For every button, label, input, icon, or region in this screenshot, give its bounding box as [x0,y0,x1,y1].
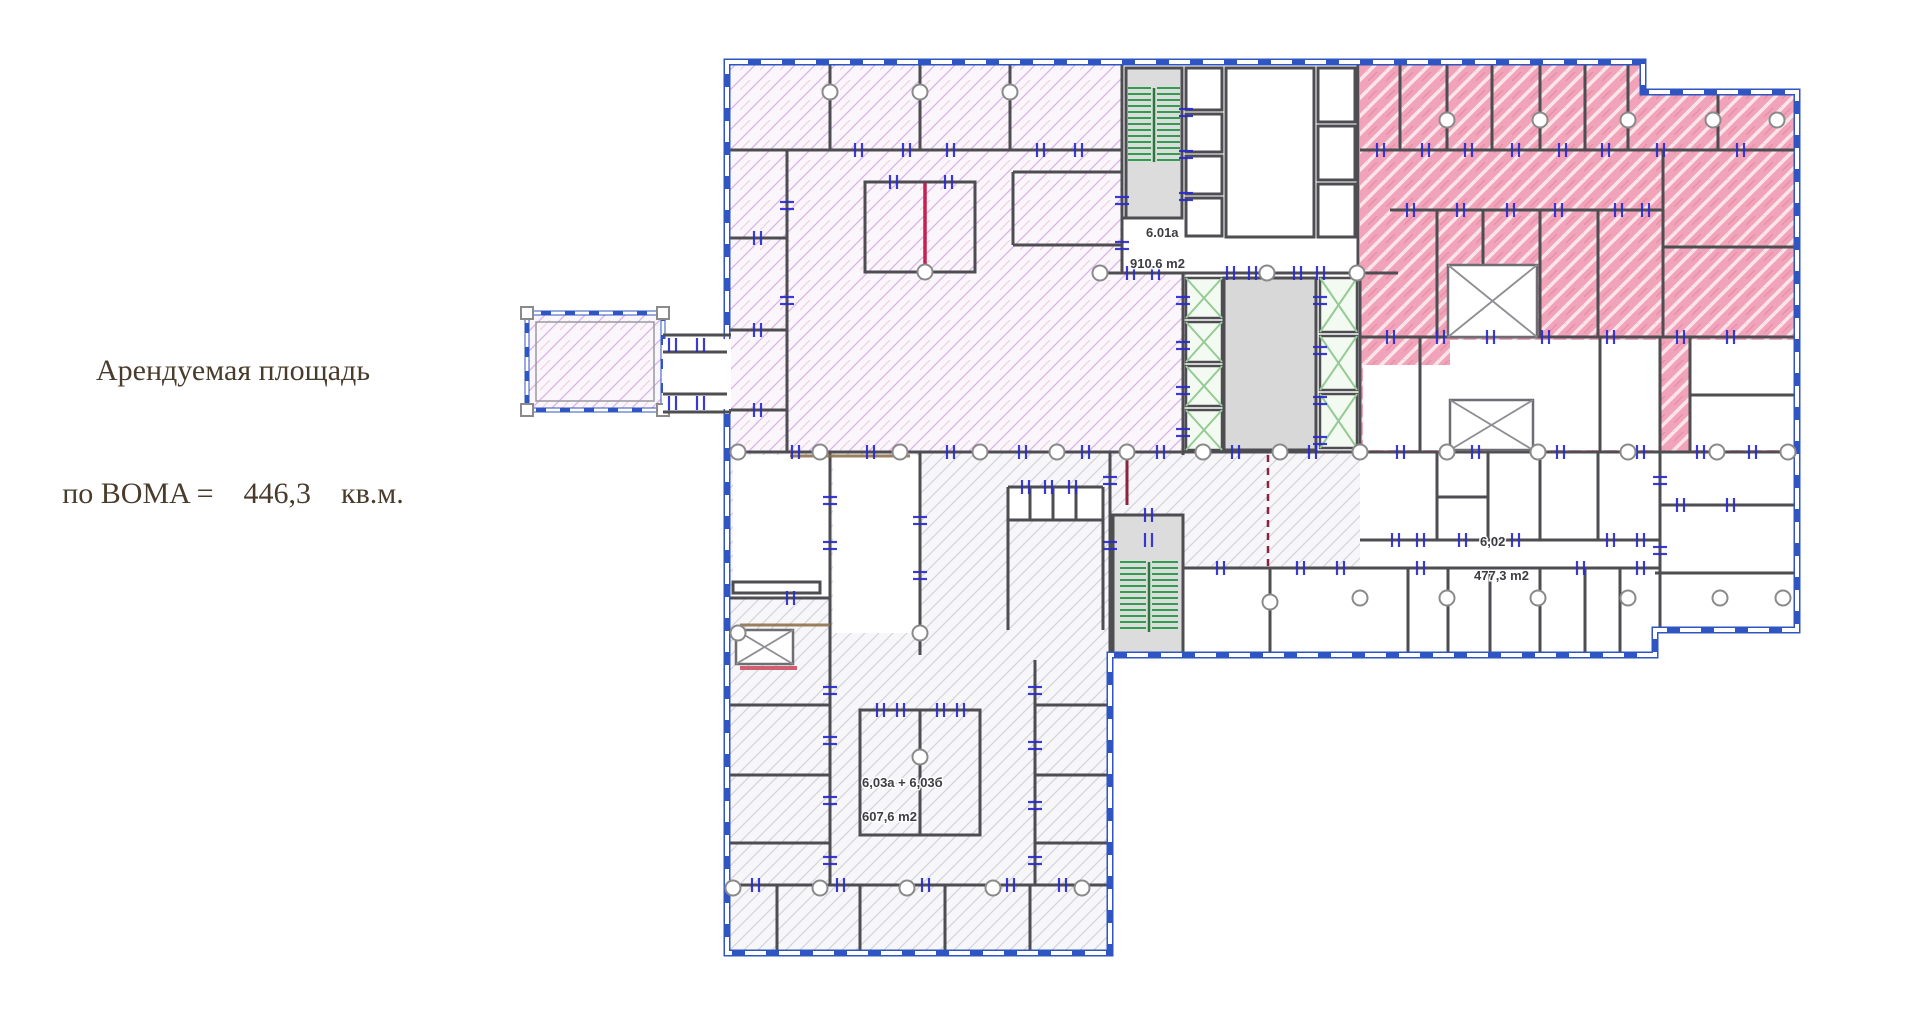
column-marker [1706,113,1721,128]
white-room-southwest [833,455,920,633]
column-marker [1120,445,1135,460]
column-marker [1273,445,1288,460]
column-marker [913,85,928,100]
elevator-shaft [1318,126,1355,180]
column-marker [1260,266,1275,281]
white-room-southwest [733,455,830,598]
column-marker [913,750,928,765]
column-marker [1621,113,1636,128]
column-marker [1440,591,1455,606]
west-appendage [521,307,731,416]
column-marker [918,265,933,280]
column-marker [1621,445,1636,460]
column-marker [900,881,915,896]
column-marker [1075,881,1090,896]
column-marker [1713,591,1728,606]
elevator-shaft [1318,68,1355,122]
column-marker [1050,445,1065,460]
elevator-shaft [1186,114,1222,152]
elevator-shaft [1186,68,1222,110]
appendage-outline [527,313,663,410]
column-marker [893,445,908,460]
column-marker [726,881,741,896]
column-marker [1710,445,1725,460]
appendage-corner [657,307,669,319]
appendage-corner [521,404,533,416]
column-marker [1621,591,1636,606]
column-marker [1440,113,1455,128]
column-marker [1093,266,1108,281]
column-marker [813,445,828,460]
column-marker [731,445,746,460]
column-marker [913,626,928,641]
label-room-6-01a: 6.01a [1146,225,1179,240]
column-marker [1353,591,1368,606]
appendage-corner [521,307,533,319]
column-marker [1533,113,1548,128]
floor-plan-svg: 6.01a910.6 m26,02477,3 m26,03a + 6,03б60… [0,0,1920,1018]
column-marker [1003,85,1018,100]
elevator-shaft [1186,198,1222,236]
white-room-overlay [1363,365,1450,450]
label-area-607-6: 607,6 m2 [862,809,917,824]
column-marker [731,626,746,641]
column-marker [1776,591,1791,606]
label-room-6-03: 6,03a + 6,03б [862,775,943,790]
column-marker [973,445,988,460]
column-marker [1263,595,1278,610]
label-room-6-02: 6,02 [1480,534,1505,549]
elevator-lobby [1224,278,1316,450]
column-marker [1196,445,1211,460]
column-marker [986,881,1001,896]
column-marker [813,881,828,896]
label-area-477-3: 477,3 m2 [1474,568,1529,583]
column-marker [1770,113,1785,128]
column-marker [1531,591,1546,606]
column-marker [1781,445,1796,460]
column-marker [1440,445,1455,460]
label-area-910-6: 910.6 m2 [1130,256,1185,271]
elevator-shaft [1186,156,1222,194]
column-marker [1353,445,1368,460]
machine-room [1226,68,1314,237]
column-marker [1350,266,1365,281]
elevator-shaft [1318,184,1355,237]
column-marker [1531,445,1546,460]
floor-plan-page: { "annotation": { "line1": "Арендуемая п… [0,0,1920,1018]
column-marker [823,85,838,100]
